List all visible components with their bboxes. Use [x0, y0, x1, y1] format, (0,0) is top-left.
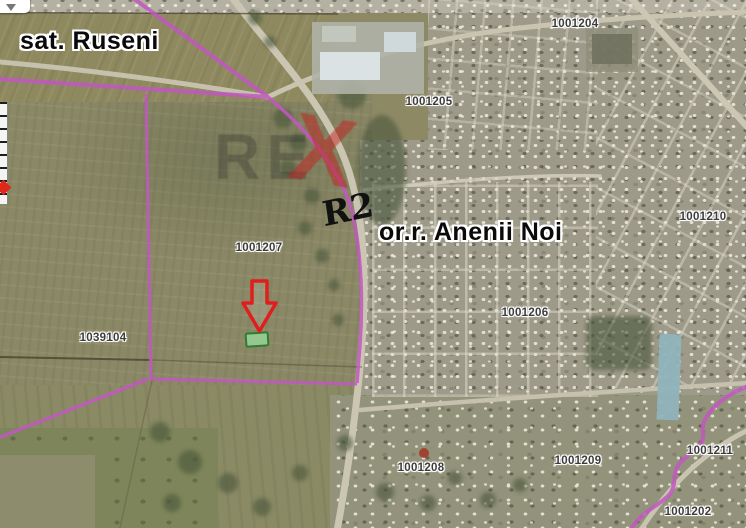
map-scale-ruler[interactable] [0, 102, 8, 204]
street-grid-right [596, 0, 746, 388]
map-callout-cutoff[interactable] [0, 0, 30, 13]
callout-tail-icon [6, 4, 16, 11]
street-grid-center [372, 182, 598, 397]
town-label: or.r. Anenii Noi [379, 218, 563, 247]
parcel-label-1001210: 1001210 [680, 211, 727, 223]
parcel-label-1001209: 1001209 [555, 455, 602, 467]
parcel-label-1039104: 1039104 [80, 332, 127, 344]
farmland-bottom-corner [0, 455, 95, 528]
parcel-label-1001205: 1001205 [406, 96, 453, 108]
satellite-map[interactable]: RE X sat. Ruseni or.r. Anenii Noi R2 100… [0, 0, 746, 528]
parcel-label-1001204: 1001204 [552, 18, 599, 30]
farmland-top-left [0, 12, 330, 102]
parcel-label-1001208: 1001208 [398, 462, 445, 474]
parcel-label-1001207: 1001207 [236, 242, 283, 254]
village-label: sat. Ruseni [20, 27, 159, 56]
parcel-label-1001211: 1001211 [687, 445, 733, 457]
parcel-label-1001206: 1001206 [502, 307, 549, 319]
parcel-label-1001202: 1001202 [665, 506, 712, 518]
